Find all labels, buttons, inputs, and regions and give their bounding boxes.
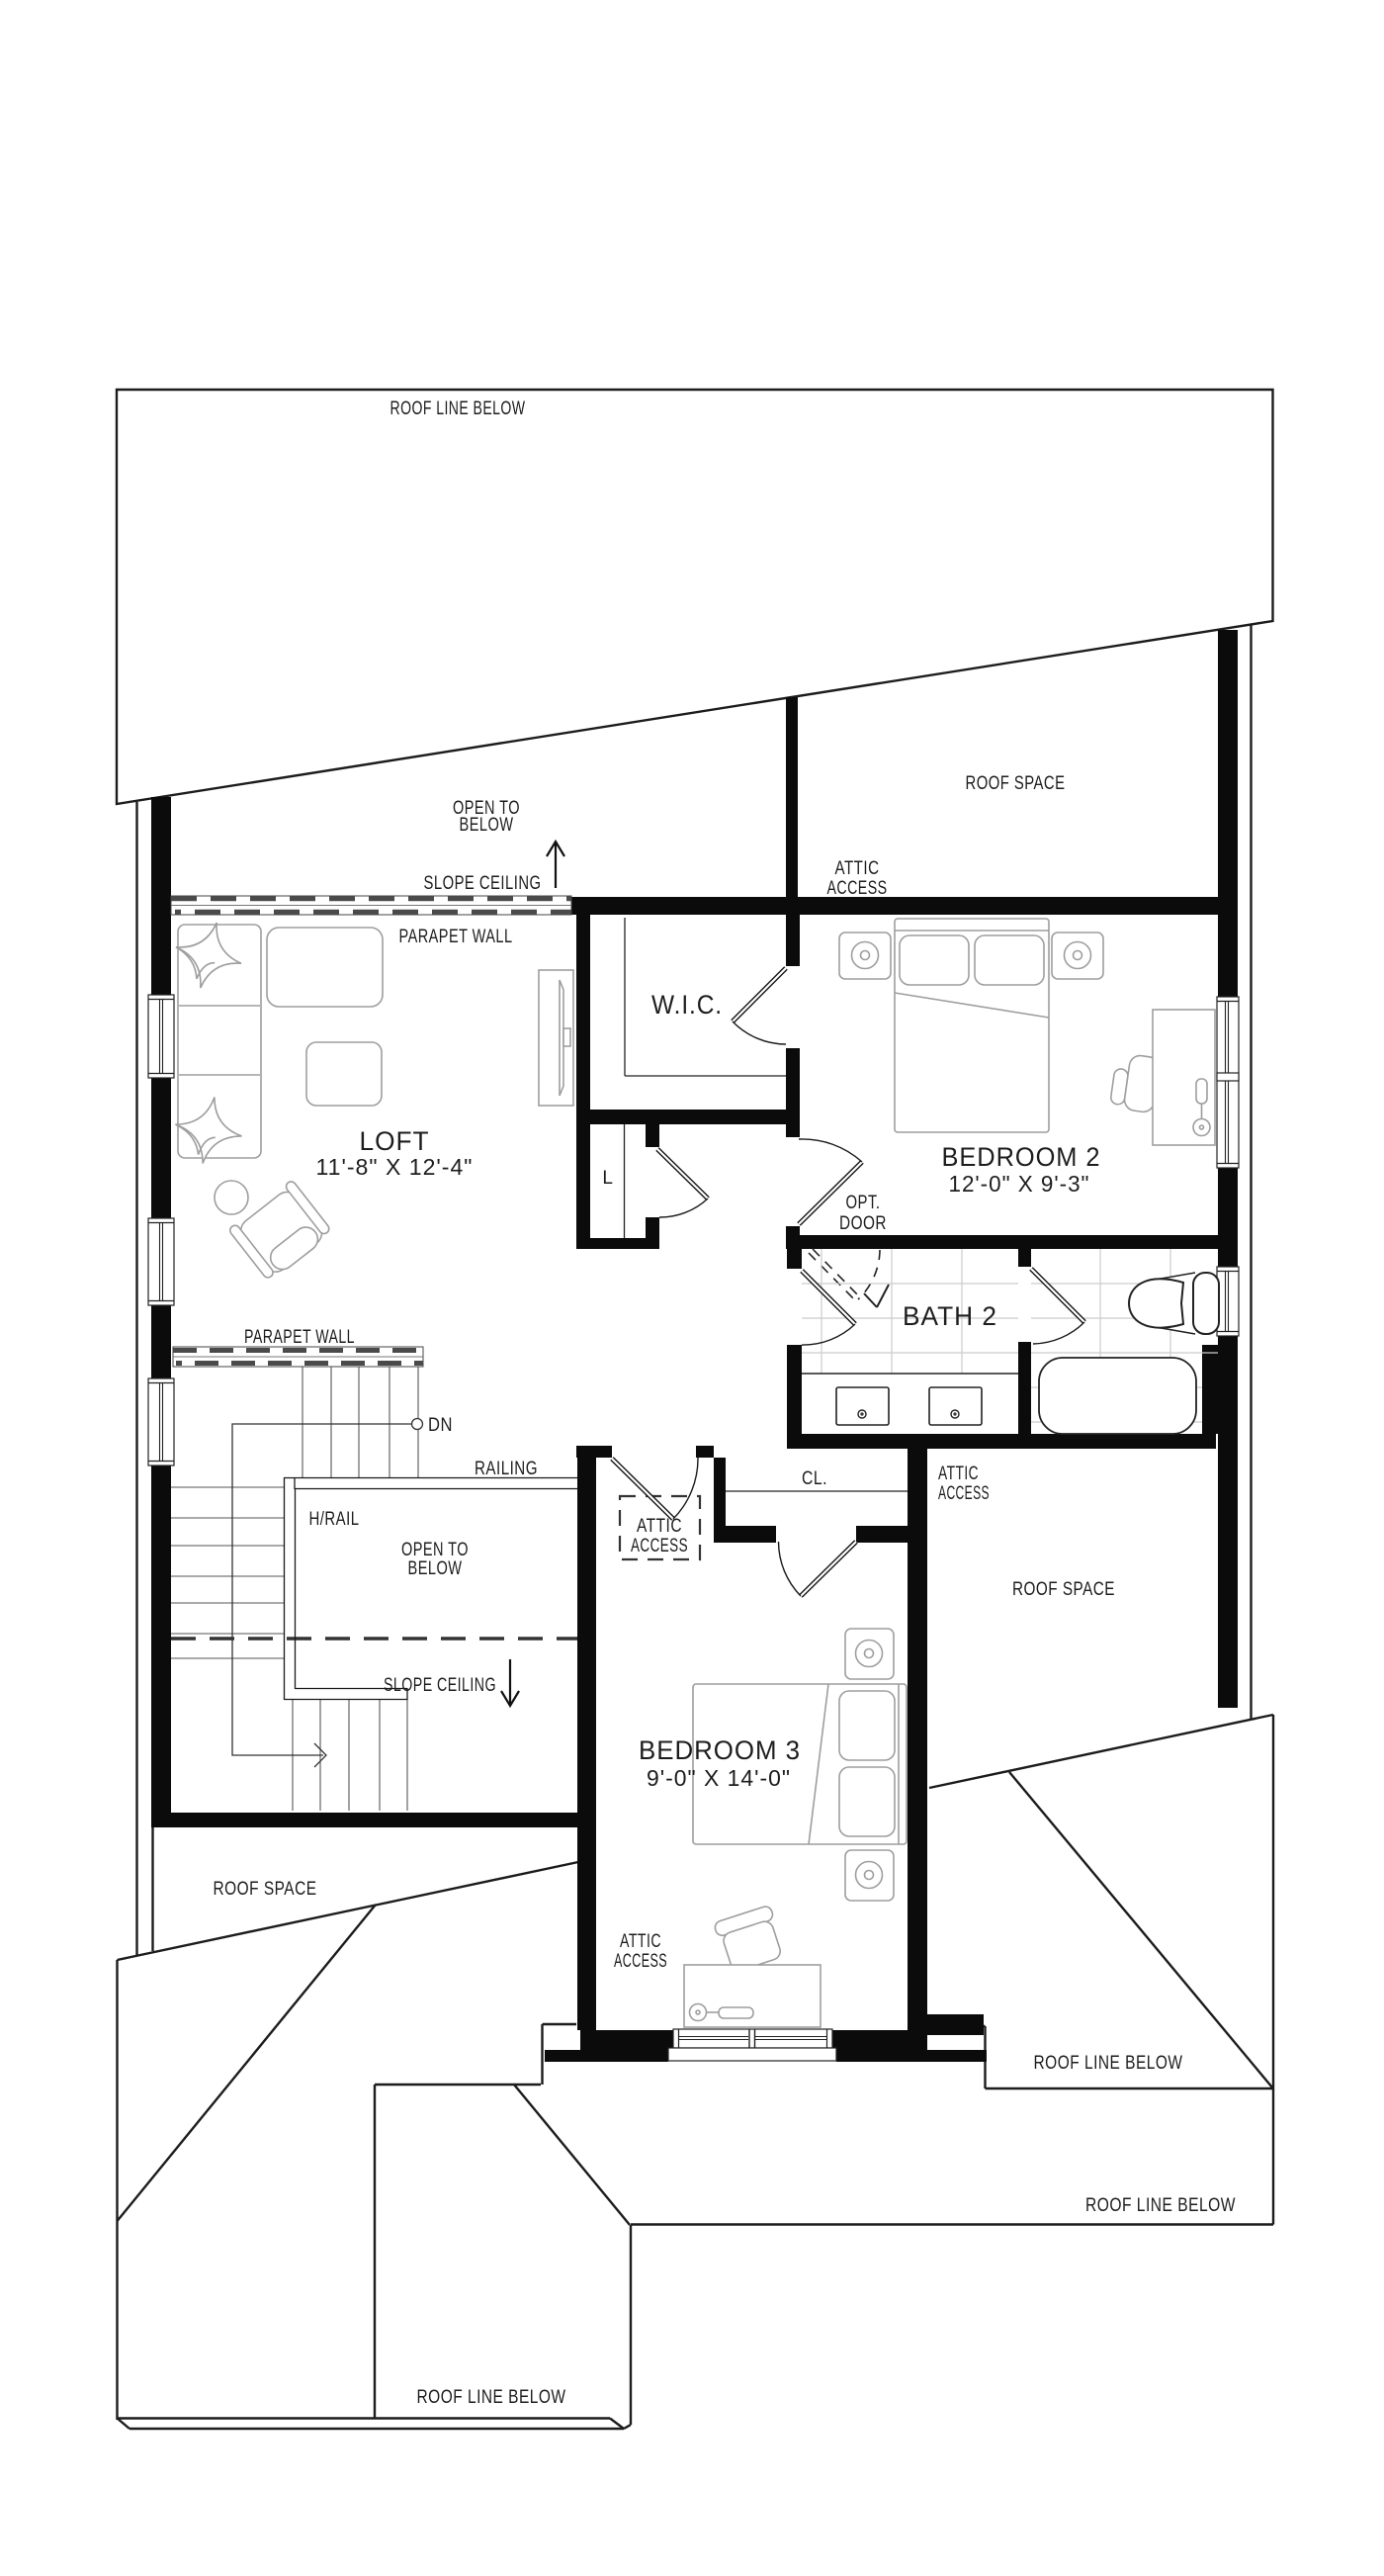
svg-text:ACCESS: ACCESS — [938, 1483, 990, 1504]
svg-text:ROOF SPACE: ROOF SPACE — [966, 773, 1066, 794]
svg-text:ACCESS: ACCESS — [614, 1951, 667, 1972]
svg-text:OPT.: OPT. — [846, 1193, 881, 1213]
svg-text:PARAPET WALL: PARAPET WALL — [244, 1327, 355, 1348]
svg-text:BEDROOM 2: BEDROOM 2 — [942, 1142, 1101, 1172]
svg-text:12'-0" X 9'-3": 12'-0" X 9'-3" — [949, 1171, 1090, 1197]
svg-text:ATTIC: ATTIC — [938, 1464, 979, 1484]
svg-text:BELOW: BELOW — [408, 1558, 463, 1579]
svg-text:BELOW: BELOW — [460, 815, 514, 836]
svg-text:BEDROOM 3: BEDROOM 3 — [639, 1735, 801, 1765]
svg-text:ROOF SPACE: ROOF SPACE — [1012, 1579, 1115, 1600]
svg-text:ATTIC: ATTIC — [835, 858, 880, 879]
svg-text:CL.: CL. — [802, 1468, 827, 1489]
svg-text:BATH 2: BATH 2 — [903, 1301, 997, 1331]
svg-text:ROOF LINE BELOW: ROOF LINE BELOW — [417, 2387, 566, 2408]
svg-text:L: L — [602, 1168, 613, 1189]
svg-text:ROOF LINE BELOW: ROOF LINE BELOW — [1085, 2195, 1236, 2216]
svg-text:SLOPE CEILING: SLOPE CEILING — [384, 1675, 496, 1696]
svg-text:PARAPET WALL: PARAPET WALL — [399, 927, 513, 947]
svg-text:9'-0" X 14'-0": 9'-0" X 14'-0" — [647, 1765, 791, 1791]
svg-text:OPEN TO: OPEN TO — [401, 1540, 469, 1560]
svg-text:ROOF SPACE: ROOF SPACE — [214, 1879, 317, 1900]
svg-text:H/RAIL: H/RAIL — [309, 1509, 360, 1530]
svg-text:SLOPE CEILING: SLOPE CEILING — [424, 873, 542, 894]
svg-text:ROOF LINE BELOW: ROOF LINE BELOW — [390, 399, 526, 419]
svg-text:11'-8" X 12'-4": 11'-8" X 12'-4" — [316, 1154, 474, 1180]
svg-text:W.I.C.: W.I.C. — [651, 990, 723, 1020]
svg-text:ROOF LINE BELOW: ROOF LINE BELOW — [1034, 2053, 1183, 2074]
svg-text:ATTIC: ATTIC — [637, 1516, 682, 1537]
svg-text:LOFT: LOFT — [360, 1126, 430, 1156]
svg-text:DOOR: DOOR — [839, 1213, 887, 1234]
svg-text:ATTIC: ATTIC — [620, 1931, 661, 1952]
svg-text:RAILING: RAILING — [475, 1459, 538, 1479]
svg-text:DN: DN — [428, 1415, 453, 1436]
svg-text:ACCESS: ACCESS — [631, 1536, 688, 1556]
svg-text:ACCESS: ACCESS — [827, 878, 888, 899]
